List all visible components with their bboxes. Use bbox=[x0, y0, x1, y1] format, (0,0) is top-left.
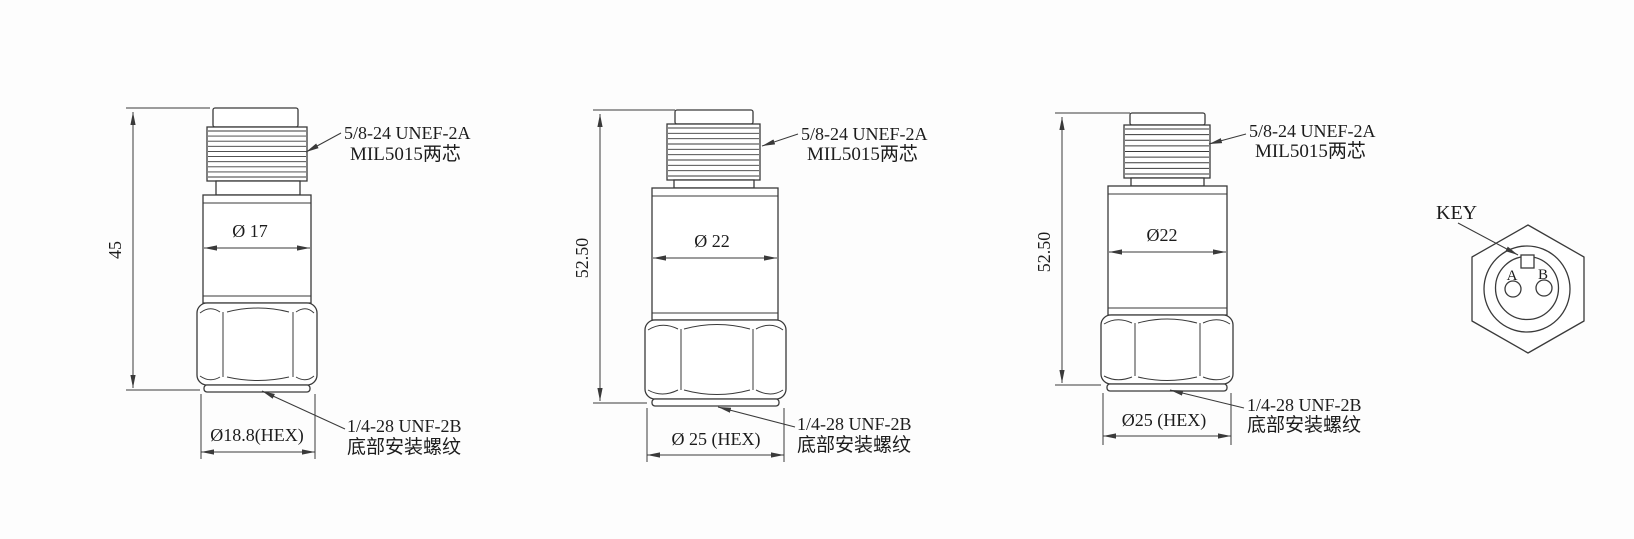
mount-thread-text-line2: 底部安装螺纹 bbox=[347, 436, 461, 458]
sensor-figure-1: 45 Ø 17 Ø18.8(HEX) 5/8-24 UNEF-2A MIL501… bbox=[105, 108, 471, 459]
sensor-figure-3: 52.50 Ø22 Ø25 (HEX) 5/8-24 UNEF-2A MIL50… bbox=[1034, 113, 1376, 445]
thread-outline bbox=[207, 127, 307, 181]
thread-spec-callout: 5/8-24 UNEF-2A MIL5015两芯 bbox=[762, 124, 928, 165]
top-cap bbox=[213, 108, 298, 127]
body-section bbox=[1108, 186, 1227, 315]
hex-width-dimension: Ø25 (HEX) bbox=[1103, 393, 1231, 445]
hex-nut bbox=[645, 320, 786, 399]
hex-silhouette bbox=[197, 303, 317, 385]
thread-spec-callout: 5/8-24 UNEF-2A MIL5015两芯 bbox=[1209, 121, 1376, 162]
height-dim-label: 45 bbox=[105, 241, 125, 259]
height-dimension: 45 bbox=[105, 108, 210, 390]
neck-section bbox=[216, 181, 300, 195]
base-ring bbox=[204, 385, 310, 392]
base-ring bbox=[1107, 384, 1227, 391]
height-dim-label: 52.50 bbox=[1034, 232, 1054, 273]
key-label: KEY bbox=[1436, 202, 1477, 224]
leader-line bbox=[718, 407, 795, 427]
mount-thread-text-line2: 底部安装螺纹 bbox=[1247, 414, 1361, 436]
base-ring bbox=[652, 399, 779, 406]
hex-width-label: Ø18.8(HEX) bbox=[210, 425, 303, 446]
connector-key-slot bbox=[1521, 255, 1534, 268]
thread-section bbox=[207, 127, 307, 181]
top-cap bbox=[1130, 113, 1205, 125]
hex-silhouette bbox=[1101, 315, 1233, 384]
body-diameter-label: Ø22 bbox=[1147, 225, 1178, 245]
hex-nut bbox=[197, 303, 317, 385]
thread-spec-text-line1: 5/8-24 UNEF-2A bbox=[801, 124, 928, 144]
height-dim-label: 52.50 bbox=[572, 238, 592, 279]
neck-section bbox=[1131, 178, 1204, 186]
connector-end-view: A B KEY bbox=[1436, 202, 1584, 353]
neck-section bbox=[674, 180, 754, 188]
pin-b-label: B bbox=[1538, 267, 1548, 283]
thread-spec-text-line1: 5/8-24 UNEF-2A bbox=[344, 123, 471, 143]
leader-line bbox=[262, 391, 345, 429]
leader-line bbox=[1170, 390, 1244, 408]
thread-outline bbox=[667, 124, 760, 180]
sensor-figure-2: 52.50 Ø 22 Ø 25 (HEX) 5/8-24 UNEF-2A MIL… bbox=[572, 110, 928, 462]
thread-spec-text-line2: MIL5015两芯 bbox=[350, 143, 461, 165]
mount-thread-text-line2: 底部安装螺纹 bbox=[797, 434, 911, 456]
thread-spec-text-line2: MIL5015两芯 bbox=[807, 143, 918, 165]
hex-width-dimension: Ø 25 (HEX) bbox=[647, 408, 784, 462]
hex-width-label: Ø 25 (HEX) bbox=[672, 429, 761, 450]
thread-spec-callout: 5/8-24 UNEF-2A MIL5015两芯 bbox=[306, 123, 471, 165]
leader-line bbox=[306, 133, 341, 152]
pin-a-label: A bbox=[1507, 268, 1518, 284]
thread-spec-text-line2: MIL5015两芯 bbox=[1255, 140, 1366, 162]
hex-width-dimension: Ø18.8(HEX) bbox=[201, 394, 315, 459]
technical-drawing-canvas: 45 Ø 17 Ø18.8(HEX) 5/8-24 UNEF-2A MIL501… bbox=[0, 0, 1634, 539]
body-section bbox=[203, 195, 311, 303]
leader-line bbox=[1209, 134, 1246, 144]
mount-thread-text-line1: 1/4-28 UNF-2B bbox=[347, 416, 462, 436]
leader-line bbox=[762, 134, 798, 146]
top-cap bbox=[675, 110, 753, 124]
mount-thread-text-line1: 1/4-28 UNF-2B bbox=[797, 414, 912, 434]
hex-width-label: Ø25 (HEX) bbox=[1122, 410, 1206, 431]
thread-section bbox=[1124, 125, 1210, 178]
hex-silhouette bbox=[645, 320, 786, 399]
body-section bbox=[652, 188, 778, 320]
body-diameter-label: Ø 17 bbox=[232, 221, 268, 241]
thread-section bbox=[667, 124, 760, 180]
hex-nut bbox=[1101, 315, 1233, 384]
thread-spec-text-line1: 5/8-24 UNEF-2A bbox=[1249, 121, 1376, 141]
body-diameter-label: Ø 22 bbox=[694, 231, 730, 251]
mount-thread-text-line1: 1/4-28 UNF-2B bbox=[1247, 395, 1362, 415]
